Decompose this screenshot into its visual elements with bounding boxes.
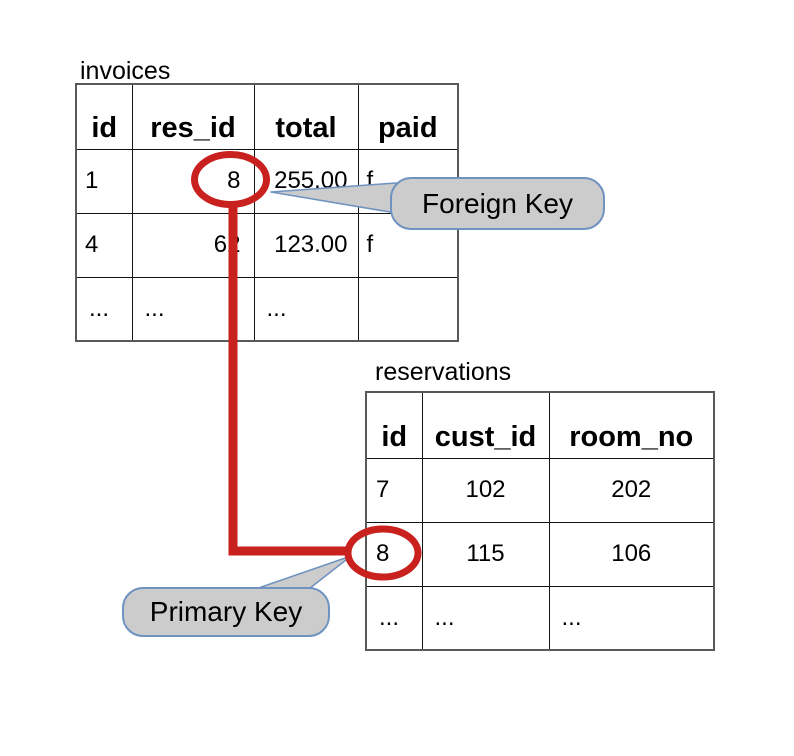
table-cell-foreign-key: 8: [132, 149, 254, 213]
table-cell-primary-key: 8: [366, 522, 422, 586]
table-cell: 7: [366, 458, 422, 522]
reservations-table-title: reservations: [375, 358, 511, 387]
reservations-header-room-no: room_no: [549, 392, 714, 458]
table-cell: ...: [76, 277, 132, 341]
table-cell: ...: [366, 586, 422, 650]
table-cell: ...: [254, 277, 358, 341]
table-cell: [358, 277, 458, 341]
invoices-header-total: total: [254, 84, 358, 149]
invoices-header-row: id res_id total paid: [76, 84, 458, 149]
reservations-row-2: 8 115 106: [366, 522, 714, 586]
table-cell: 1: [76, 149, 132, 213]
reservations-header-id: id: [366, 392, 422, 458]
table-cell: 255.00: [254, 149, 358, 213]
er-diagram: invoices id res_id total paid 1 8 255.00…: [0, 0, 794, 756]
reservations-header-cust-id: cust_id: [422, 392, 549, 458]
table-cell: 62: [132, 213, 254, 277]
invoices-header-id: id: [76, 84, 132, 149]
table-cell: 4: [76, 213, 132, 277]
invoices-table-title: invoices: [80, 57, 170, 86]
table-cell: 202: [549, 458, 714, 522]
table-cell: 102: [422, 458, 549, 522]
foreign-key-callout: Foreign Key: [390, 177, 605, 230]
table-cell: ...: [132, 277, 254, 341]
reservations-row-1: 7 102 202: [366, 458, 714, 522]
table-cell: ...: [422, 586, 549, 650]
reservations-header-row: id cust_id room_no: [366, 392, 714, 458]
primary-key-callout: Primary Key: [122, 587, 330, 637]
foreign-key-callout-label: Foreign Key: [422, 188, 573, 220]
table-cell: ...: [549, 586, 714, 650]
invoices-header-res-id: res_id: [132, 84, 254, 149]
invoices-header-paid: paid: [358, 84, 458, 149]
primary-key-callout-label: Primary Key: [150, 596, 302, 628]
table-cell: 106: [549, 522, 714, 586]
reservations-table: id cust_id room_no 7 102 202 8 115 106 .…: [365, 391, 715, 651]
table-cell: 123.00: [254, 213, 358, 277]
reservations-row-ellipsis: ... ... ...: [366, 586, 714, 650]
table-cell: 115: [422, 522, 549, 586]
invoices-row-ellipsis: ... ... ...: [76, 277, 458, 341]
